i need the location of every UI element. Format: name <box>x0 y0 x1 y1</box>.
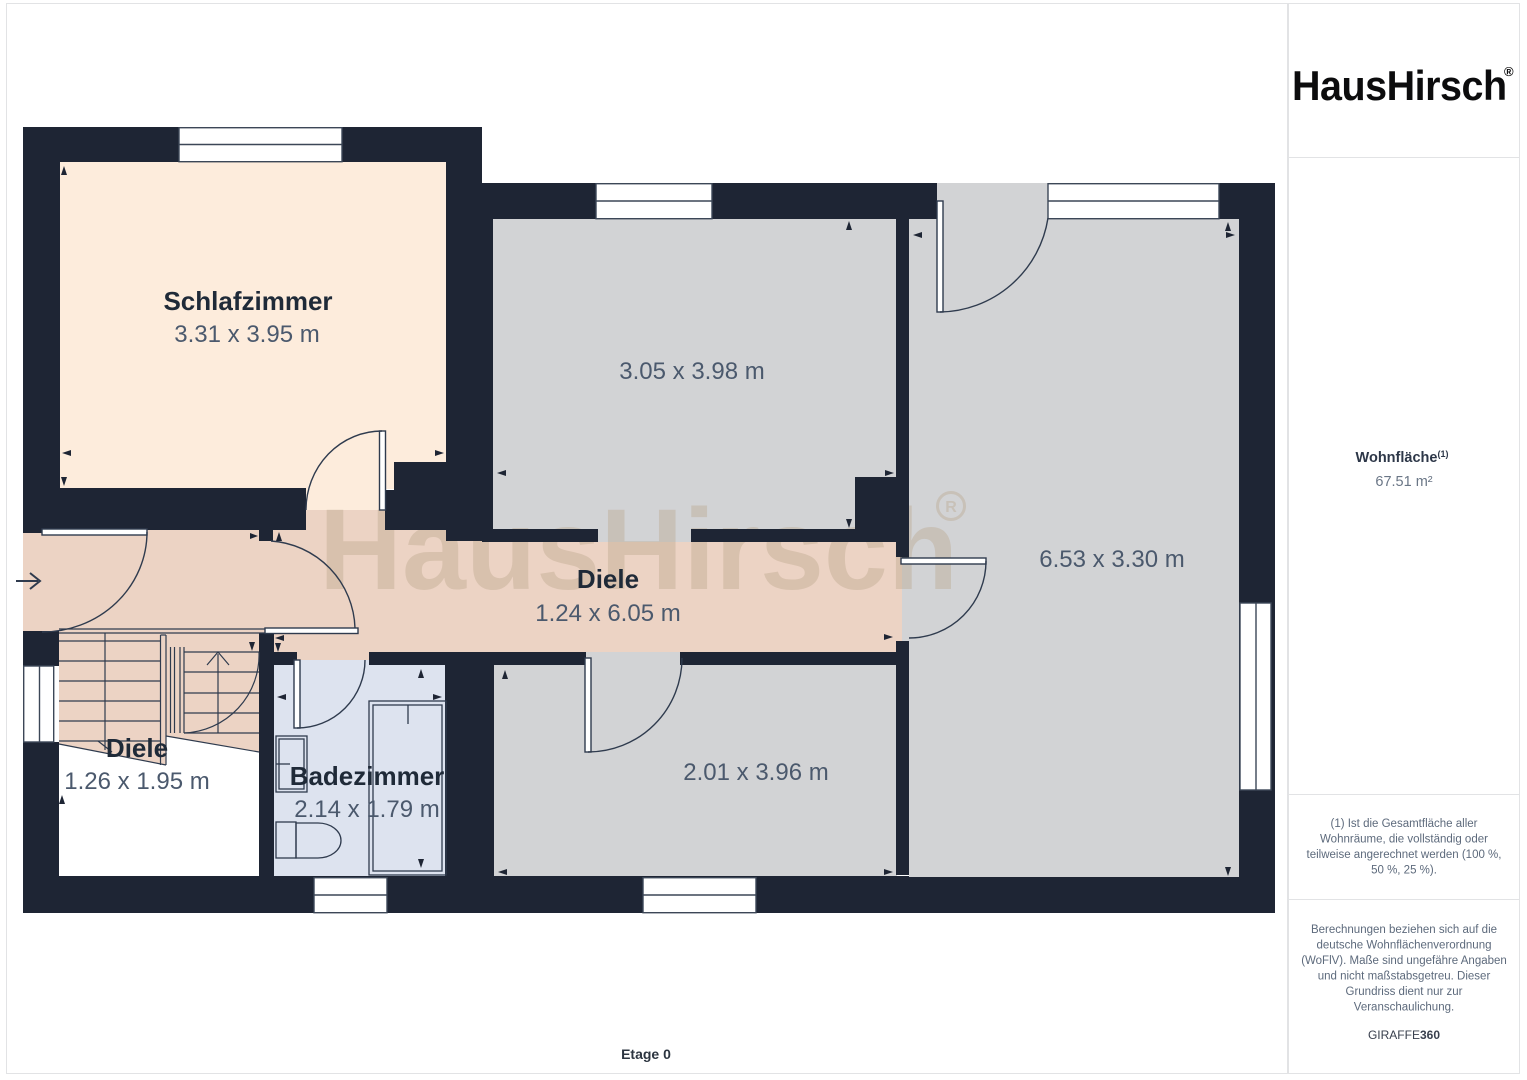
svg-text:3.05 x 3.98 m: 3.05 x 3.98 m <box>619 358 764 385</box>
svg-text:teilweise angerechnet werden (: teilweise angerechnet werden (100 %, <box>1307 849 1502 861</box>
svg-text:R: R <box>945 499 957 516</box>
svg-text:2.14 x 1.79 m: 2.14 x 1.79 m <box>294 796 439 823</box>
svg-text:HausHirsch: HausHirsch <box>1292 62 1507 109</box>
svg-text:(WoFlV). Maße sind ungefähre A: (WoFlV). Maße sind ungefähre Angaben <box>1301 955 1507 967</box>
svg-text:Diele: Diele <box>106 733 168 763</box>
svg-text:und nicht maßstabsgetreu. Dies: und nicht maßstabsgetreu. Dieser <box>1318 971 1491 983</box>
svg-text:deutsche Wohnflächenverordnung: deutsche Wohnflächenverordnung <box>1317 940 1492 952</box>
svg-text:6.53 x 3.30 m: 6.53 x 3.30 m <box>1039 546 1184 573</box>
svg-text:Grundriss dient nur zur: Grundriss dient nur zur <box>1346 986 1463 998</box>
svg-text:Berechnungen beziehen sich auf: Berechnungen beziehen sich auf die <box>1311 924 1497 936</box>
svg-text:1.26 x 1.95 m: 1.26 x 1.95 m <box>64 768 209 795</box>
svg-text:®: ® <box>1504 64 1514 79</box>
svg-text:GIRAFFE360: GIRAFFE360 <box>1368 1028 1440 1042</box>
svg-text:50 %, 25 %).: 50 %, 25 %). <box>1371 865 1437 877</box>
svg-text:1.24 x 6.05 m: 1.24 x 6.05 m <box>535 600 680 627</box>
svg-text:Wohnräume, die vollständig ode: Wohnräume, die vollständig oder <box>1320 834 1488 846</box>
svg-text:3.31 x 3.95 m: 3.31 x 3.95 m <box>174 321 319 348</box>
svg-text:67.51 m²: 67.51 m² <box>1375 474 1432 490</box>
svg-text:Etage 0: Etage 0 <box>621 1046 671 1062</box>
svg-text:(1) Ist die Gesamtfläche aller: (1) Ist die Gesamtfläche aller <box>1330 818 1477 830</box>
svg-text:Veranschaulichung.: Veranschaulichung. <box>1354 1002 1454 1014</box>
svg-text:Diele: Diele <box>577 564 639 594</box>
svg-text:Wohnfläche(1): Wohnfläche(1) <box>1356 449 1449 466</box>
svg-text:Schlafzimmer: Schlafzimmer <box>163 286 332 316</box>
svg-text:Badezimmer: Badezimmer <box>290 761 445 791</box>
svg-text:2.01 x 3.96 m: 2.01 x 3.96 m <box>683 759 828 786</box>
